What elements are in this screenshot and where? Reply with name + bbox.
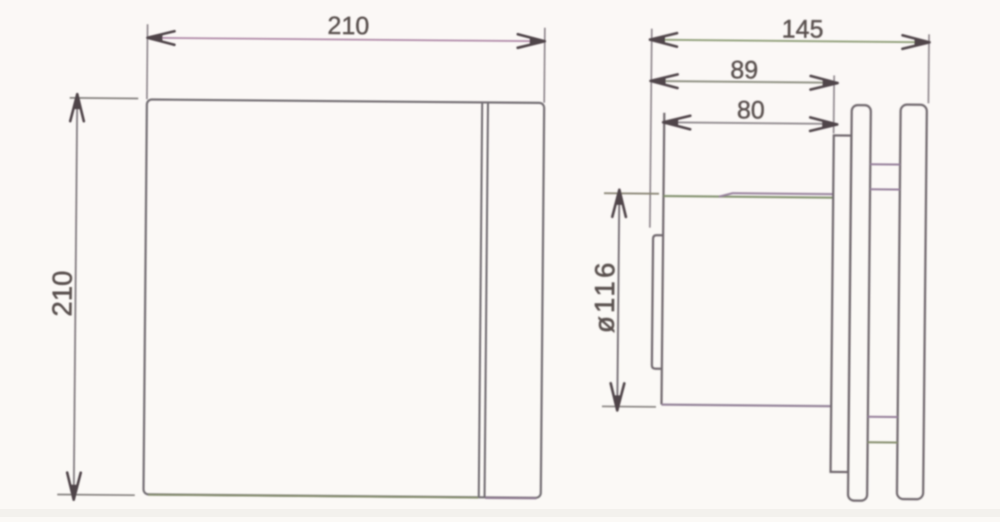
svg-text:210: 210 [327, 12, 369, 40]
svg-text:210: 210 [46, 270, 77, 316]
svg-text:80: 80 [737, 96, 765, 124]
svg-text:ø116: ø116 [589, 259, 621, 333]
svg-text:89: 89 [730, 56, 758, 84]
svg-text:145: 145 [782, 15, 824, 43]
